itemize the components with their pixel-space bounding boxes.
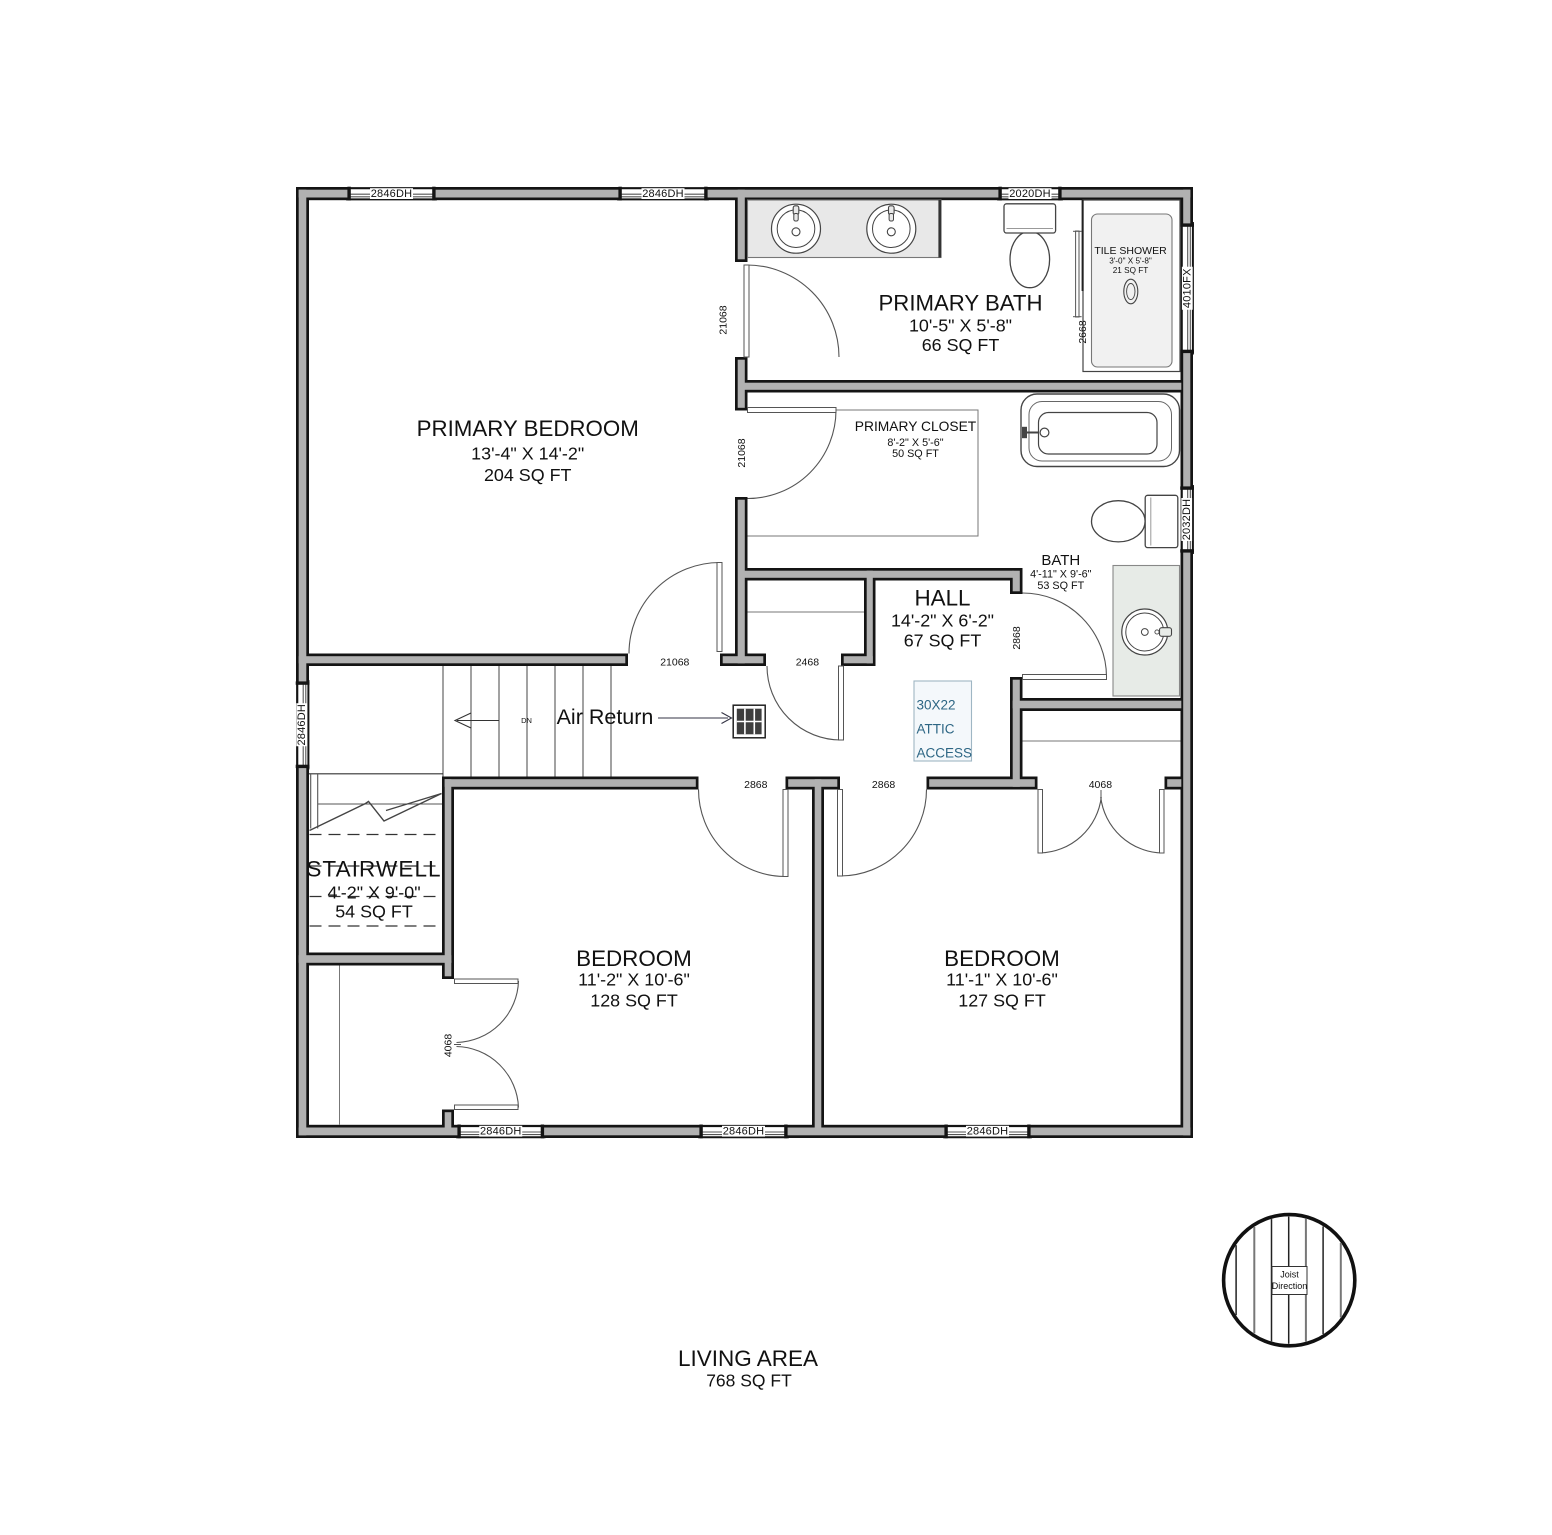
svg-text:11'-1" X 10'-6": 11'-1" X 10'-6" — [946, 970, 1058, 990]
svg-text:Direction: Direction — [1272, 1281, 1308, 1291]
svg-text:21068: 21068 — [736, 438, 748, 467]
svg-text:53 SQ FT: 53 SQ FT — [1037, 580, 1084, 592]
svg-text:PRIMARY BATH: PRIMARY BATH — [879, 291, 1043, 316]
svg-text:2846DH: 2846DH — [371, 188, 413, 200]
svg-text:21 SQ FT: 21 SQ FT — [1113, 266, 1149, 275]
svg-text:Air Return: Air Return — [557, 705, 654, 729]
svg-text:2868: 2868 — [744, 779, 768, 791]
svg-text:11'-2" X 10'-6": 11'-2" X 10'-6" — [578, 970, 690, 990]
svg-text:2468: 2468 — [796, 657, 820, 669]
svg-text:ACCESS: ACCESS — [917, 746, 973, 761]
svg-text:2868: 2868 — [872, 779, 896, 791]
svg-text:2668: 2668 — [1077, 320, 1089, 344]
svg-text:2846DH: 2846DH — [642, 188, 684, 200]
svg-text:ATTIC: ATTIC — [917, 722, 955, 737]
svg-text:128 SQ FT: 128 SQ FT — [590, 991, 678, 1011]
svg-text:PRIMARY BEDROOM: PRIMARY BEDROOM — [417, 416, 639, 441]
svg-text:2846DH: 2846DH — [480, 1126, 522, 1138]
svg-text:4068: 4068 — [1089, 779, 1113, 791]
svg-text:127 SQ FT: 127 SQ FT — [958, 991, 1046, 1011]
svg-text:204 SQ FT: 204 SQ FT — [484, 465, 572, 485]
svg-text:2868: 2868 — [1011, 626, 1023, 650]
svg-text:BEDROOM: BEDROOM — [576, 946, 692, 971]
svg-text:4010FX: 4010FX — [1182, 268, 1194, 308]
svg-text:3'-0" X 5'-8": 3'-0" X 5'-8" — [1109, 257, 1152, 266]
svg-text:13'-4" X 14'-2": 13'-4" X 14'-2" — [471, 444, 584, 464]
svg-text:2032DH: 2032DH — [1181, 499, 1193, 541]
svg-text:50 SQ FT: 50 SQ FT — [892, 448, 939, 460]
svg-text:66 SQ FT: 66 SQ FT — [922, 335, 1000, 355]
svg-text:67 SQ FT: 67 SQ FT — [904, 631, 982, 651]
svg-text:HALL: HALL — [914, 586, 970, 611]
svg-text:BATH: BATH — [1041, 552, 1080, 569]
svg-text:4'-11" X 9'-6": 4'-11" X 9'-6" — [1030, 569, 1092, 581]
svg-text:2846DH: 2846DH — [967, 1126, 1009, 1138]
svg-text:BEDROOM: BEDROOM — [944, 946, 1060, 971]
svg-text:4'-2" X 9'-0": 4'-2" X 9'-0" — [327, 883, 420, 903]
svg-text:2846DH: 2846DH — [723, 1126, 765, 1138]
svg-text:STAIRWELL: STAIRWELL — [306, 857, 441, 882]
svg-text:2846DH: 2846DH — [296, 704, 308, 746]
svg-text:54 SQ FT: 54 SQ FT — [335, 902, 413, 922]
svg-text:TILE SHOWER: TILE SHOWER — [1094, 245, 1167, 257]
svg-text:4068: 4068 — [443, 1034, 455, 1058]
svg-text:PRIMARY CLOSET: PRIMARY CLOSET — [855, 419, 977, 434]
svg-text:Joist: Joist — [1280, 1270, 1299, 1280]
svg-text:30X22: 30X22 — [917, 698, 956, 713]
svg-text:2020DH: 2020DH — [1009, 188, 1051, 200]
svg-text:14'-2" X 6'-2": 14'-2" X 6'-2" — [891, 611, 994, 631]
svg-text:21068: 21068 — [660, 657, 689, 669]
svg-text:DN: DN — [521, 716, 532, 725]
svg-text:21068: 21068 — [718, 305, 730, 334]
svg-text:10'-5" X 5'-8": 10'-5" X 5'-8" — [909, 316, 1012, 336]
svg-text:768 SQ FT: 768 SQ FT — [706, 1371, 792, 1391]
svg-text:LIVING AREA: LIVING AREA — [678, 1346, 818, 1371]
